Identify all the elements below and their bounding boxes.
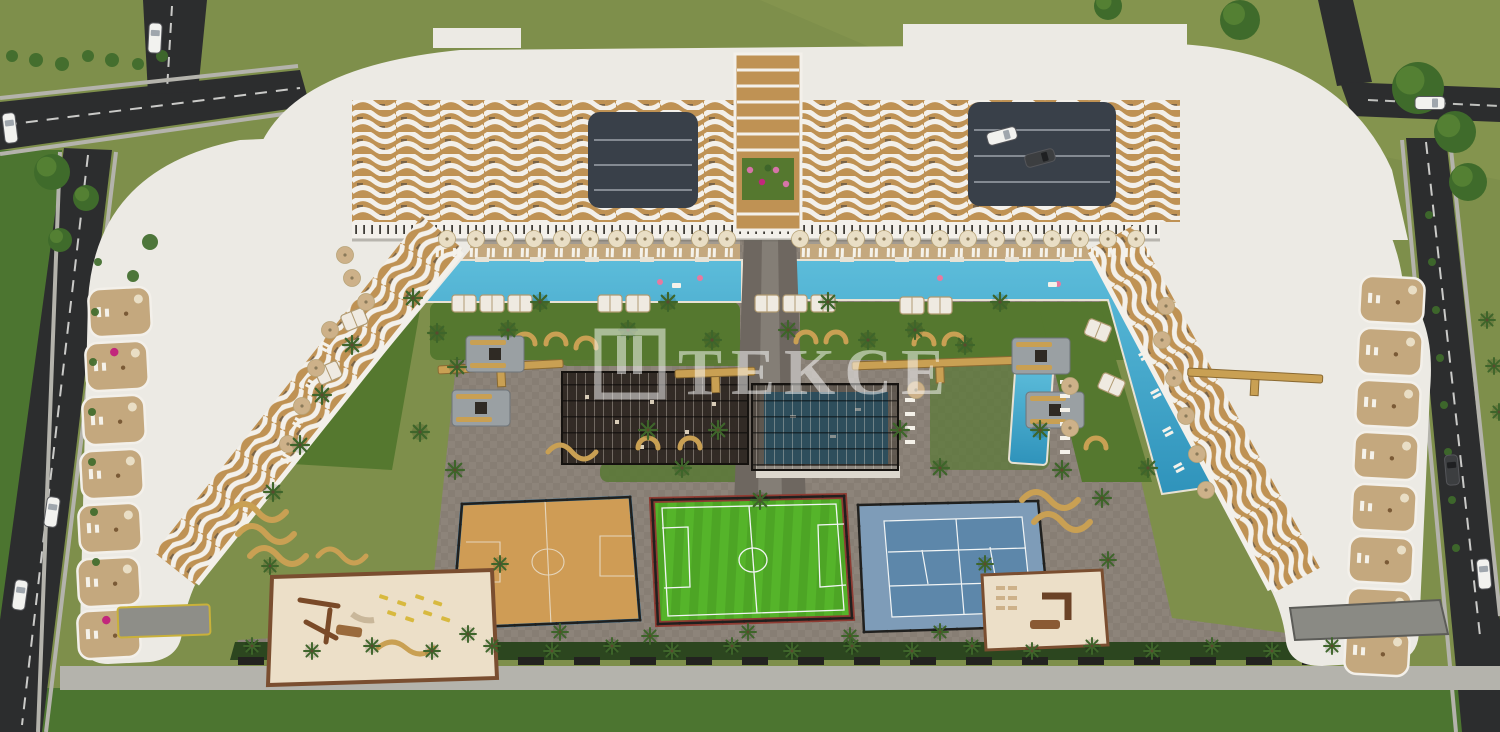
wall-dash — [798, 657, 824, 665]
fence-post — [608, 496, 611, 499]
palm-tree-icon — [819, 293, 837, 311]
umbrella-pole — [994, 237, 997, 240]
fence-post — [651, 499, 654, 502]
fence-post — [859, 546, 862, 549]
palm-trunk — [411, 296, 414, 299]
entrance-tower — [735, 54, 801, 230]
fence-post — [857, 504, 860, 507]
umbrella-pole — [854, 237, 857, 240]
terrace-unit — [85, 340, 149, 391]
tree-highlight — [1223, 3, 1245, 25]
fence-post — [459, 523, 462, 526]
palm-trunk — [971, 645, 974, 648]
lounger — [875, 248, 878, 257]
leafy-tree-icon — [1220, 0, 1260, 40]
palm-trunk — [1100, 496, 1103, 499]
umbrella-icon — [322, 322, 339, 339]
umbrella-icon — [664, 231, 681, 248]
palm-trunk — [938, 466, 941, 469]
lounger — [938, 248, 941, 257]
umbrella-pole — [314, 366, 317, 369]
lounger — [640, 248, 643, 257]
lounger — [972, 248, 975, 257]
palm-trunk — [998, 300, 1001, 303]
lounger — [560, 248, 563, 257]
fence-post — [630, 516, 633, 519]
umbrella-pole — [882, 237, 885, 240]
palm-trunk — [758, 498, 761, 501]
palm-tree-icon — [1031, 421, 1049, 439]
umbrella-icon — [337, 247, 354, 264]
palm-tree-icon — [264, 483, 282, 501]
pool-raft — [1048, 282, 1057, 287]
fence-post — [863, 631, 866, 634]
palm-trunk — [538, 300, 541, 303]
fence-post — [1037, 500, 1040, 503]
umbrella-pole — [910, 237, 913, 240]
palm-trunk — [826, 300, 829, 303]
fence-post — [637, 598, 640, 601]
lounger — [1108, 248, 1111, 257]
bush — [105, 53, 119, 67]
firepit-bench — [1016, 342, 1052, 347]
lounger — [853, 248, 856, 257]
palm-trunk — [1107, 559, 1110, 562]
palm-tree-icon — [991, 293, 1009, 311]
wall-dash — [1134, 657, 1160, 665]
umbrella-icon — [308, 360, 325, 377]
pool-float — [937, 275, 943, 281]
umbrella-icon — [792, 231, 809, 248]
palm-tree-icon — [404, 289, 422, 307]
palm-tree-icon — [664, 643, 680, 659]
umbrella-pole — [328, 328, 331, 331]
umbrella-pole — [364, 300, 367, 303]
bush — [94, 258, 102, 266]
palm-trunk — [680, 466, 683, 469]
palm-tree-icon — [784, 643, 800, 659]
lounger — [909, 248, 912, 257]
bush — [1428, 258, 1436, 266]
fence-post — [657, 623, 660, 626]
terrace-unit — [82, 394, 146, 445]
wall-dash — [518, 657, 544, 665]
palm-trunk — [506, 328, 509, 331]
watermark-logo-bar — [617, 336, 626, 374]
fence-post — [1014, 500, 1017, 503]
terrace-furniture — [1368, 503, 1372, 511]
fence-post — [678, 622, 681, 625]
fence-post — [513, 624, 516, 627]
fence-post — [721, 621, 724, 624]
terrace-unit — [1359, 275, 1425, 324]
fence-post — [618, 619, 621, 622]
fence-post — [461, 503, 464, 506]
umbrella-pole — [343, 253, 346, 256]
palm-trunk — [251, 645, 254, 648]
fence-post — [821, 495, 824, 498]
palm-trunk — [646, 428, 649, 431]
terrace-furniture — [86, 629, 91, 639]
umbrella-icon — [932, 231, 949, 248]
palm-trunk — [849, 635, 852, 638]
fence-post — [743, 620, 746, 623]
lounger — [538, 248, 541, 257]
lounger — [921, 248, 924, 257]
bush — [92, 558, 100, 566]
palm-trunk — [716, 428, 719, 431]
sun-lounger — [1060, 450, 1070, 454]
umbrella-pole — [1022, 237, 1025, 240]
lounger — [824, 248, 827, 257]
fence-post — [576, 621, 579, 624]
palm-tree-icon — [544, 643, 560, 659]
lounger — [628, 248, 631, 257]
umbrella-pole — [1204, 488, 1207, 491]
leafy-tree-icon — [73, 185, 99, 211]
palm-tree-icon — [499, 321, 517, 339]
tree-highlight — [37, 157, 57, 177]
atrium-west — [588, 112, 698, 208]
lounger — [645, 248, 648, 257]
firepit-lounge — [452, 390, 510, 426]
umbrella-icon — [692, 231, 709, 248]
fence-post — [566, 498, 569, 501]
palm-tree-icon — [904, 643, 920, 659]
fence-post — [654, 561, 657, 564]
fence-post — [655, 581, 658, 584]
sports-courts — [451, 495, 1052, 634]
palm-trunk — [435, 331, 438, 334]
lounger — [819, 248, 822, 257]
fence-post — [736, 497, 739, 500]
terrace-furniture — [94, 579, 98, 587]
bush — [1452, 544, 1460, 552]
palm-trunk — [269, 565, 272, 568]
pool-cabana — [755, 295, 779, 312]
wall-dash — [238, 657, 264, 665]
palm-trunk — [666, 300, 669, 303]
palm-trunk — [984, 563, 987, 566]
palm-trunk — [320, 393, 323, 396]
pool-raft — [672, 283, 681, 288]
scene-canvas: TEKCE — [0, 0, 1500, 732]
fence-post — [639, 619, 642, 622]
umbrella-icon — [1062, 420, 1079, 437]
palm-trunk — [559, 631, 562, 634]
bush — [89, 358, 97, 366]
fence-post — [800, 495, 803, 498]
tower-garden — [742, 158, 794, 200]
leafy-tree-icon — [34, 154, 70, 190]
palm-tree-icon — [751, 491, 769, 509]
terrace-furniture — [97, 471, 101, 479]
wall-dash — [574, 657, 600, 665]
terrace-unit — [80, 448, 144, 499]
wall-dash — [686, 657, 712, 665]
lounger — [1028, 248, 1031, 257]
lounger — [1091, 248, 1094, 257]
umbrella-pole — [615, 237, 618, 240]
umbrella-icon — [582, 231, 599, 248]
lounger — [492, 248, 495, 257]
palm-trunk — [1151, 650, 1154, 653]
bush — [82, 50, 94, 62]
palm-trunk — [747, 631, 750, 634]
car-body — [148, 23, 163, 54]
palm-tree-icon — [244, 638, 260, 654]
palm-tree-icon — [1264, 643, 1280, 659]
terrace-furniture — [1368, 293, 1373, 303]
umbrella-icon — [1072, 231, 1089, 248]
fence-post — [693, 498, 696, 501]
palm-trunk — [1486, 319, 1489, 322]
palm-tree-icon — [424, 643, 440, 659]
bush — [1432, 306, 1440, 314]
umbrella-icon — [637, 231, 654, 248]
leafy-tree-icon — [1449, 163, 1487, 201]
lounger — [904, 248, 907, 257]
palm-tree-icon — [709, 421, 727, 439]
palm-trunk — [455, 365, 458, 368]
lounger — [696, 248, 699, 257]
terrace-furniture — [87, 523, 92, 533]
leafy-tree-icon — [48, 228, 72, 252]
palm-trunk — [611, 645, 614, 648]
sun-lounger — [905, 440, 915, 444]
palm-tree-icon — [1324, 638, 1340, 654]
fence-post — [456, 565, 459, 568]
fence-post — [860, 567, 863, 570]
palm-tree-icon — [604, 638, 620, 654]
fence-post — [457, 544, 460, 547]
fence-post — [555, 622, 558, 625]
palm-trunk — [1060, 468, 1063, 471]
pool-cabana — [508, 295, 532, 312]
terrace-furniture — [91, 415, 96, 425]
umbrella-icon — [1166, 370, 1183, 387]
umbrella-icon — [497, 231, 514, 248]
umbrella-pole — [1184, 414, 1187, 417]
car — [1415, 97, 1445, 110]
fence-post — [656, 602, 659, 605]
car-body — [1476, 558, 1492, 589]
fence-post — [956, 628, 959, 631]
palm-tree-icon — [956, 336, 974, 354]
palm-tree-icon — [1479, 312, 1495, 328]
fence-post — [635, 578, 638, 581]
bush — [127, 270, 139, 282]
palm-trunk — [851, 645, 854, 648]
palm-trunk — [311, 650, 314, 653]
umbrella-icon — [1128, 231, 1145, 248]
lounger — [1113, 248, 1116, 257]
fence-post — [844, 515, 847, 518]
palm-tree-icon — [411, 423, 429, 441]
fence-post — [779, 496, 782, 499]
fence-post — [524, 500, 527, 503]
watermark-text: TEKCE — [678, 336, 954, 409]
lounger — [1096, 248, 1099, 257]
fence-post — [764, 619, 767, 622]
firepit-bench — [470, 340, 506, 345]
umbrella-icon — [344, 270, 361, 287]
lounger — [623, 248, 626, 257]
palm-trunk — [371, 645, 374, 648]
pool-cabana — [783, 295, 807, 312]
lounger — [713, 248, 716, 257]
terrace-unit — [1357, 327, 1423, 376]
terrace-furniture — [1370, 451, 1374, 459]
pool-float — [657, 279, 663, 285]
palm-trunk — [298, 443, 301, 446]
palm-tree-icon — [364, 638, 380, 654]
umbrella-pole — [1160, 338, 1163, 341]
palm-trunk — [649, 635, 652, 638]
palm-tree-icon — [448, 358, 466, 376]
umbrella-icon — [468, 231, 485, 248]
palm-trunk — [786, 328, 789, 331]
palm-tree-icon — [446, 461, 464, 479]
umbrella-icon — [1044, 231, 1061, 248]
lounger — [1040, 248, 1043, 257]
lounger — [487, 248, 490, 257]
pool-cabana — [928, 297, 952, 314]
pool-cabana — [598, 295, 622, 312]
umbrella-icon — [1062, 378, 1079, 395]
lounger — [572, 248, 575, 257]
bush — [1448, 496, 1456, 504]
lounger — [892, 248, 895, 257]
lounger — [679, 248, 682, 257]
fence-post — [807, 618, 810, 621]
lawn-bottom — [0, 688, 1500, 732]
wall-dash — [910, 657, 936, 665]
bush — [88, 408, 96, 416]
palm-trunk — [453, 468, 456, 471]
umbrella-pole — [350, 276, 353, 279]
umbrella-icon — [609, 231, 626, 248]
lounger — [870, 248, 873, 257]
terrace-unit — [78, 502, 142, 553]
lounger — [1125, 248, 1128, 257]
lounger — [807, 248, 810, 257]
fence-post — [715, 497, 718, 500]
pool-cabana — [480, 295, 504, 312]
lounger — [509, 248, 512, 257]
terrace-furniture — [1364, 397, 1369, 407]
lounger — [955, 248, 958, 257]
umbrella-pole — [1134, 237, 1137, 240]
fence-post — [700, 621, 703, 624]
palm-trunk — [467, 633, 470, 636]
watermark-logo-bar — [633, 336, 642, 374]
car-body — [1415, 97, 1445, 110]
palm-tree-icon — [484, 638, 500, 654]
palm-tree-icon — [1139, 459, 1157, 477]
umbrella-pole — [445, 237, 448, 240]
palm-trunk — [671, 650, 674, 653]
palm-tree-icon — [724, 638, 740, 654]
lounger — [555, 248, 558, 257]
palm-tree-icon — [740, 624, 756, 640]
lounger — [657, 248, 660, 257]
umbrella-pole — [698, 237, 701, 240]
pergola-stub — [497, 371, 506, 387]
car — [1476, 558, 1492, 589]
fence-post — [587, 497, 590, 500]
umbrella-icon — [358, 294, 375, 311]
tree-highlight — [50, 230, 63, 243]
umbrella-icon — [1016, 231, 1033, 248]
lounger — [453, 248, 456, 257]
palm-trunk — [499, 563, 502, 566]
fence-post — [848, 576, 851, 579]
lounger — [994, 248, 997, 257]
car — [1444, 454, 1460, 485]
terrace-furniture — [1365, 555, 1369, 563]
terrace-furniture — [1372, 399, 1376, 407]
sun-lounger — [905, 412, 915, 416]
terrace-furniture — [94, 631, 98, 639]
palm-tree-icon — [1144, 643, 1160, 659]
fence-post — [879, 503, 882, 506]
roof-step — [903, 24, 1187, 48]
terrace-furniture — [1362, 449, 1367, 459]
palm-trunk — [1331, 645, 1334, 648]
fence-post — [992, 501, 995, 504]
palm-tree-icon — [460, 626, 476, 642]
lounger — [708, 248, 711, 257]
lounger — [1062, 248, 1065, 257]
roof-step — [433, 28, 521, 48]
palm-trunk — [551, 650, 554, 653]
lounger — [526, 248, 529, 257]
tower-body — [735, 54, 801, 230]
umbrella-pole — [1106, 237, 1109, 240]
tree-highlight — [75, 187, 89, 201]
fence-post — [862, 609, 865, 612]
terrace-furniture — [86, 577, 91, 587]
firepit-lounge — [466, 336, 524, 372]
fence-post — [969, 501, 972, 504]
palm-trunk — [963, 343, 966, 346]
palm-tree-icon — [1486, 358, 1500, 374]
car-windshield — [5, 120, 15, 127]
terrace-unit — [1355, 379, 1421, 428]
umbrella-pole — [588, 237, 591, 240]
fence-post — [629, 496, 632, 499]
palm-tree-icon — [659, 293, 677, 311]
palm-tree-icon — [1204, 638, 1220, 654]
palm-trunk — [731, 645, 734, 648]
car-windshield — [16, 586, 26, 593]
terrace-furniture — [105, 309, 109, 317]
palm-trunk — [1211, 645, 1214, 648]
umbrella-pole — [670, 237, 673, 240]
pool-float — [697, 275, 703, 281]
umbrella-pole — [300, 404, 303, 407]
umbrella-pole — [725, 237, 728, 240]
lounger — [691, 248, 694, 257]
umbrella-icon — [988, 231, 1005, 248]
bush — [29, 53, 43, 67]
firepit-bench — [456, 417, 492, 422]
lounger — [458, 248, 461, 257]
wall-dash — [966, 657, 992, 665]
terrace-furniture — [89, 469, 94, 479]
palm-trunk — [431, 650, 434, 653]
